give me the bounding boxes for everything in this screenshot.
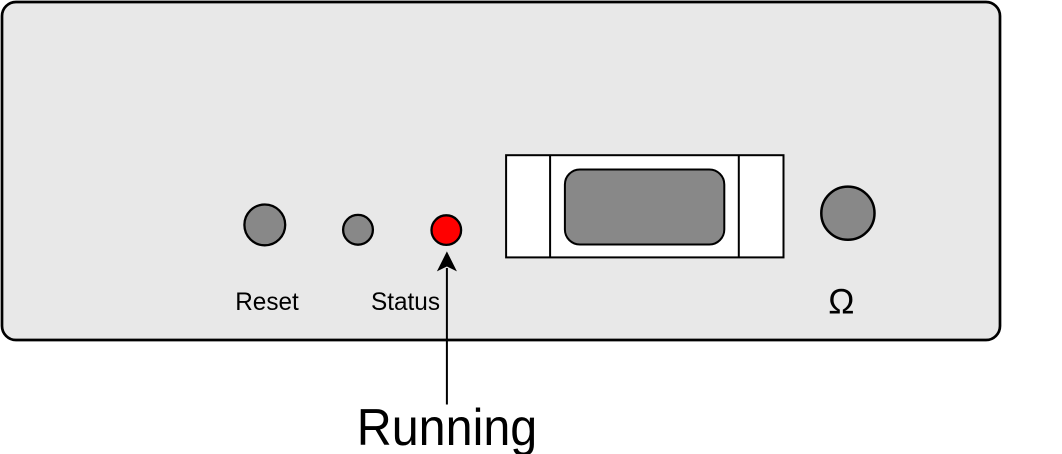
svg-text:Ω: Ω <box>828 283 854 322</box>
svg-text:Reset: Reset <box>235 288 299 316</box>
svg-text:Status: Status <box>371 288 440 316</box>
svg-text:Running: Running <box>357 399 538 454</box>
